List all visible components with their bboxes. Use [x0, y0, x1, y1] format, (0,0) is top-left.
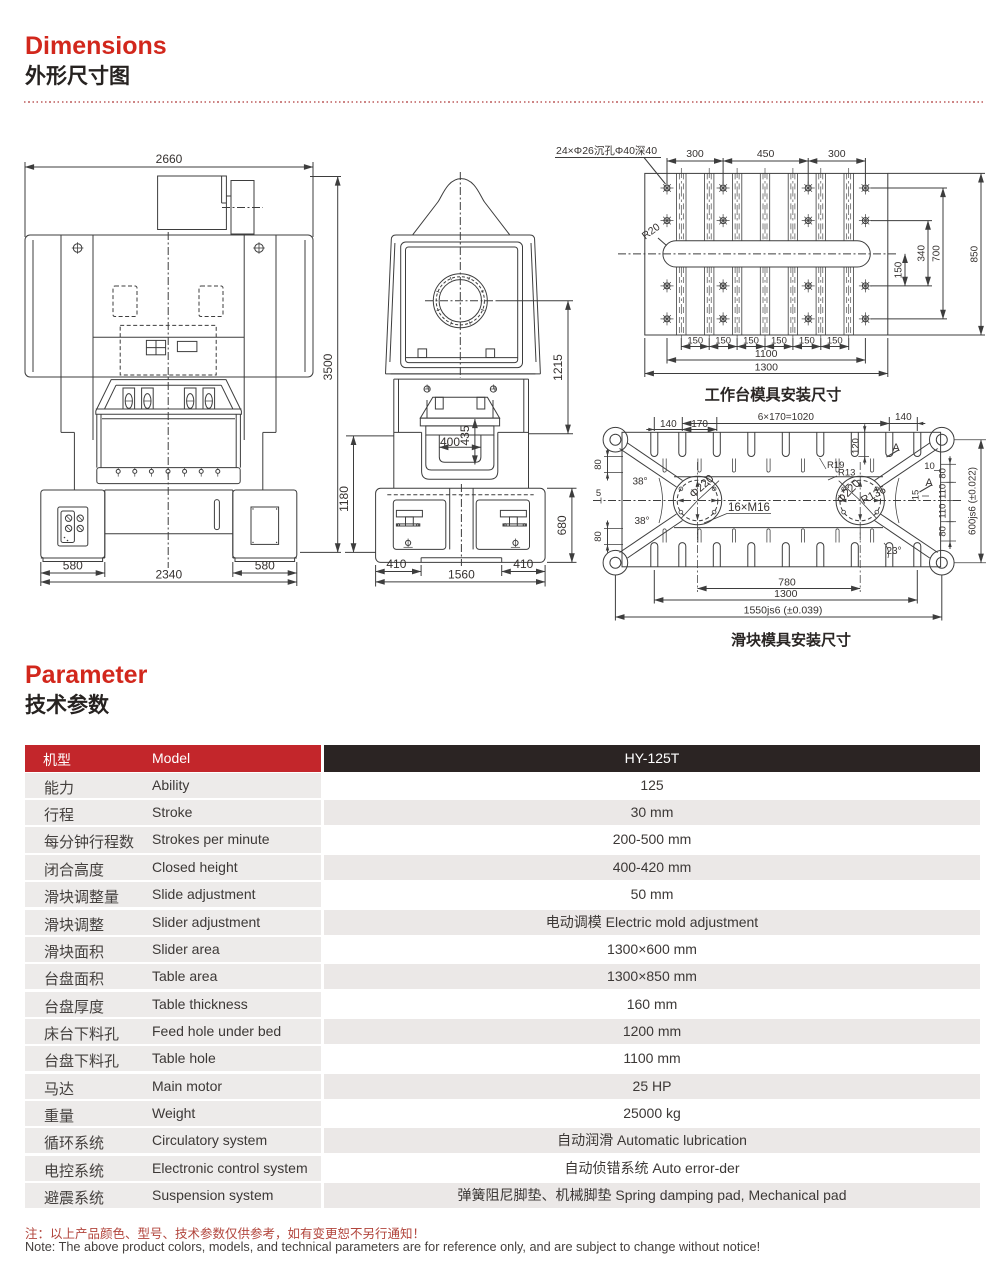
- svg-text:10: 10: [924, 461, 935, 472]
- svg-text:80: 80: [938, 526, 949, 537]
- svg-text:110: 110: [938, 484, 949, 499]
- svg-text:410: 410: [513, 557, 533, 571]
- svg-text:1215: 1215: [551, 354, 565, 381]
- svg-text:1560: 1560: [448, 568, 475, 582]
- svg-text:6×170=1020: 6×170=1020: [758, 412, 815, 423]
- svg-text:150: 150: [743, 336, 759, 347]
- svg-text:80: 80: [593, 531, 604, 542]
- svg-text:16×M16: 16×M16: [728, 502, 770, 514]
- svg-text:110: 110: [938, 504, 949, 519]
- svg-text:410: 410: [386, 557, 406, 571]
- svg-text:A: A: [892, 442, 900, 454]
- svg-text:780: 780: [778, 577, 796, 589]
- svg-text:15: 15: [911, 490, 922, 501]
- svg-text:R136: R136: [859, 484, 888, 507]
- svg-text:120: 120: [851, 438, 862, 454]
- svg-text:38°: 38°: [632, 477, 647, 488]
- svg-text:2660: 2660: [156, 152, 183, 166]
- svg-text:300: 300: [828, 148, 846, 160]
- svg-text:150: 150: [799, 336, 815, 347]
- svg-text:80: 80: [593, 459, 604, 470]
- svg-text:170: 170: [691, 419, 708, 430]
- svg-text:580: 580: [63, 559, 83, 573]
- svg-text:2340: 2340: [155, 568, 182, 582]
- svg-text:A: A: [925, 477, 933, 489]
- svg-text:150: 150: [687, 336, 703, 347]
- svg-text:80: 80: [938, 468, 949, 479]
- svg-text:1100: 1100: [755, 348, 778, 360]
- svg-text:140: 140: [895, 412, 912, 423]
- svg-text:600js6 (±0.022): 600js6 (±0.022): [967, 467, 978, 535]
- svg-text:3500: 3500: [321, 353, 335, 380]
- svg-text:1180: 1180: [337, 486, 351, 512]
- svg-text:38°: 38°: [634, 516, 649, 527]
- svg-text:300: 300: [686, 148, 704, 160]
- svg-text:1300: 1300: [774, 588, 798, 600]
- svg-text:850: 850: [969, 245, 980, 262]
- svg-text:140: 140: [660, 419, 677, 430]
- svg-text:R13: R13: [838, 468, 855, 479]
- svg-text:1300: 1300: [755, 362, 779, 374]
- svg-text:340: 340: [916, 245, 927, 262]
- svg-text:680: 680: [555, 515, 569, 535]
- svg-text:24×Φ26沉孔Φ40深40: 24×Φ26沉孔Φ40深40: [556, 144, 657, 157]
- svg-text:580: 580: [255, 559, 275, 573]
- svg-text:150: 150: [771, 336, 787, 347]
- svg-text:450: 450: [757, 148, 775, 160]
- svg-text:滑块模具安装尺寸: 滑块模具安装尺寸: [731, 631, 851, 649]
- svg-text:5: 5: [596, 488, 601, 499]
- svg-text:435: 435: [458, 425, 472, 445]
- svg-text:工作台模具安装尺寸: 工作台模具安装尺寸: [705, 386, 842, 404]
- svg-text:150: 150: [715, 336, 731, 347]
- svg-text:1550js6 (±0.039): 1550js6 (±0.039): [744, 605, 823, 617]
- svg-text:150: 150: [827, 336, 843, 347]
- svg-text:700: 700: [931, 245, 942, 262]
- svg-text:150: 150: [894, 261, 905, 278]
- svg-text:Φ220: Φ220: [835, 478, 863, 507]
